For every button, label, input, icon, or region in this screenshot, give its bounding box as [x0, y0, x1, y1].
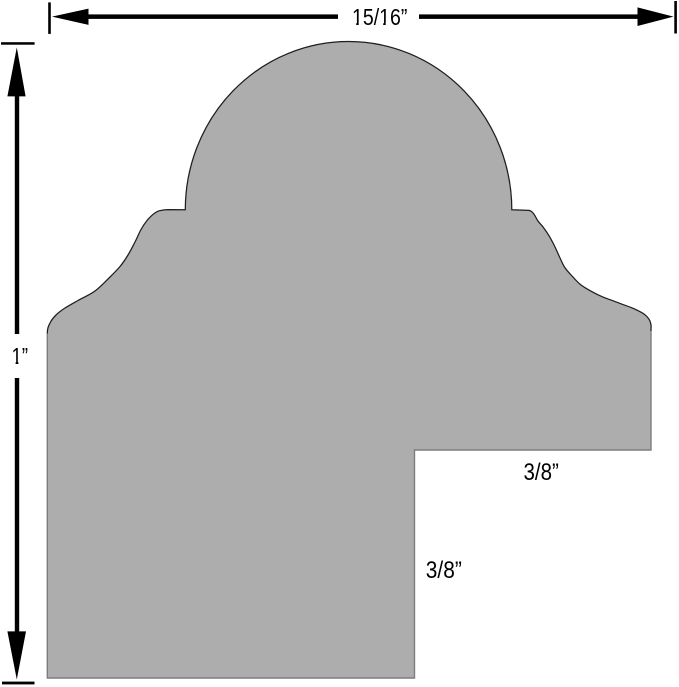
svg-text:1”: 1”: [12, 343, 29, 369]
svg-text:15/16”: 15/16”: [352, 4, 407, 30]
svg-text:3/8”: 3/8”: [426, 557, 462, 584]
svg-text:3/8”: 3/8”: [524, 459, 559, 486]
